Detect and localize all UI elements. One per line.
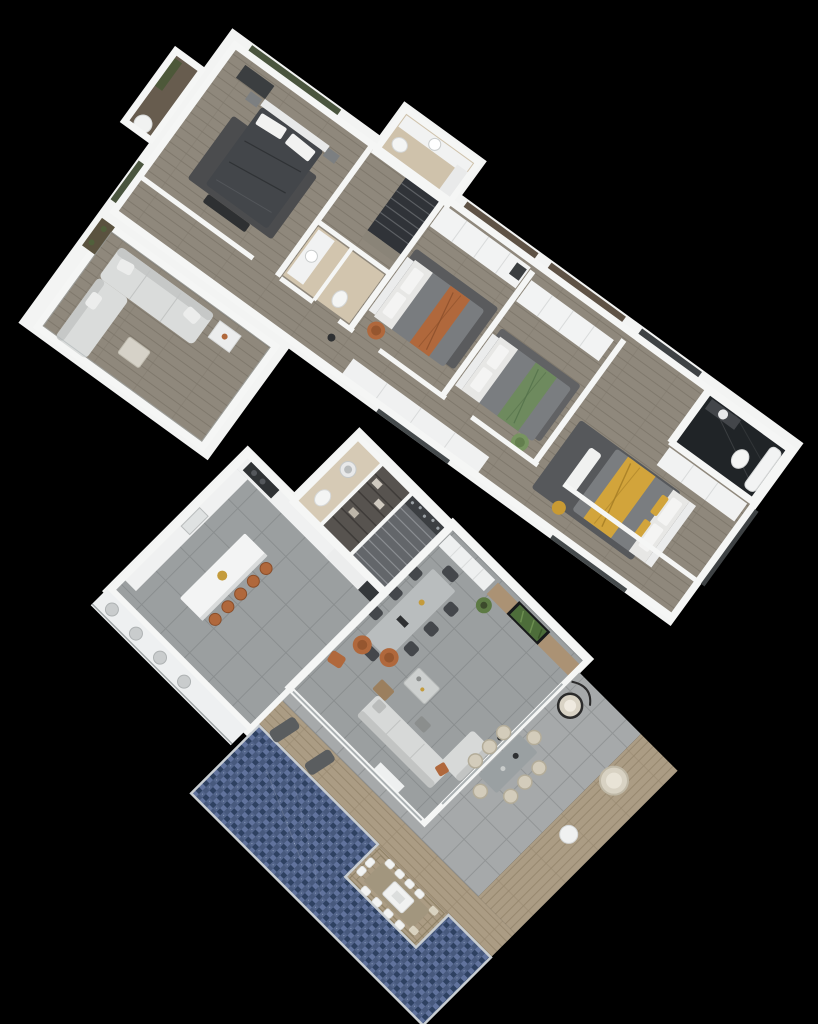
floors-root: [0, 0, 818, 1024]
floor-plan-stage: [0, 0, 818, 1024]
floor-plan-render: [0, 0, 818, 1024]
